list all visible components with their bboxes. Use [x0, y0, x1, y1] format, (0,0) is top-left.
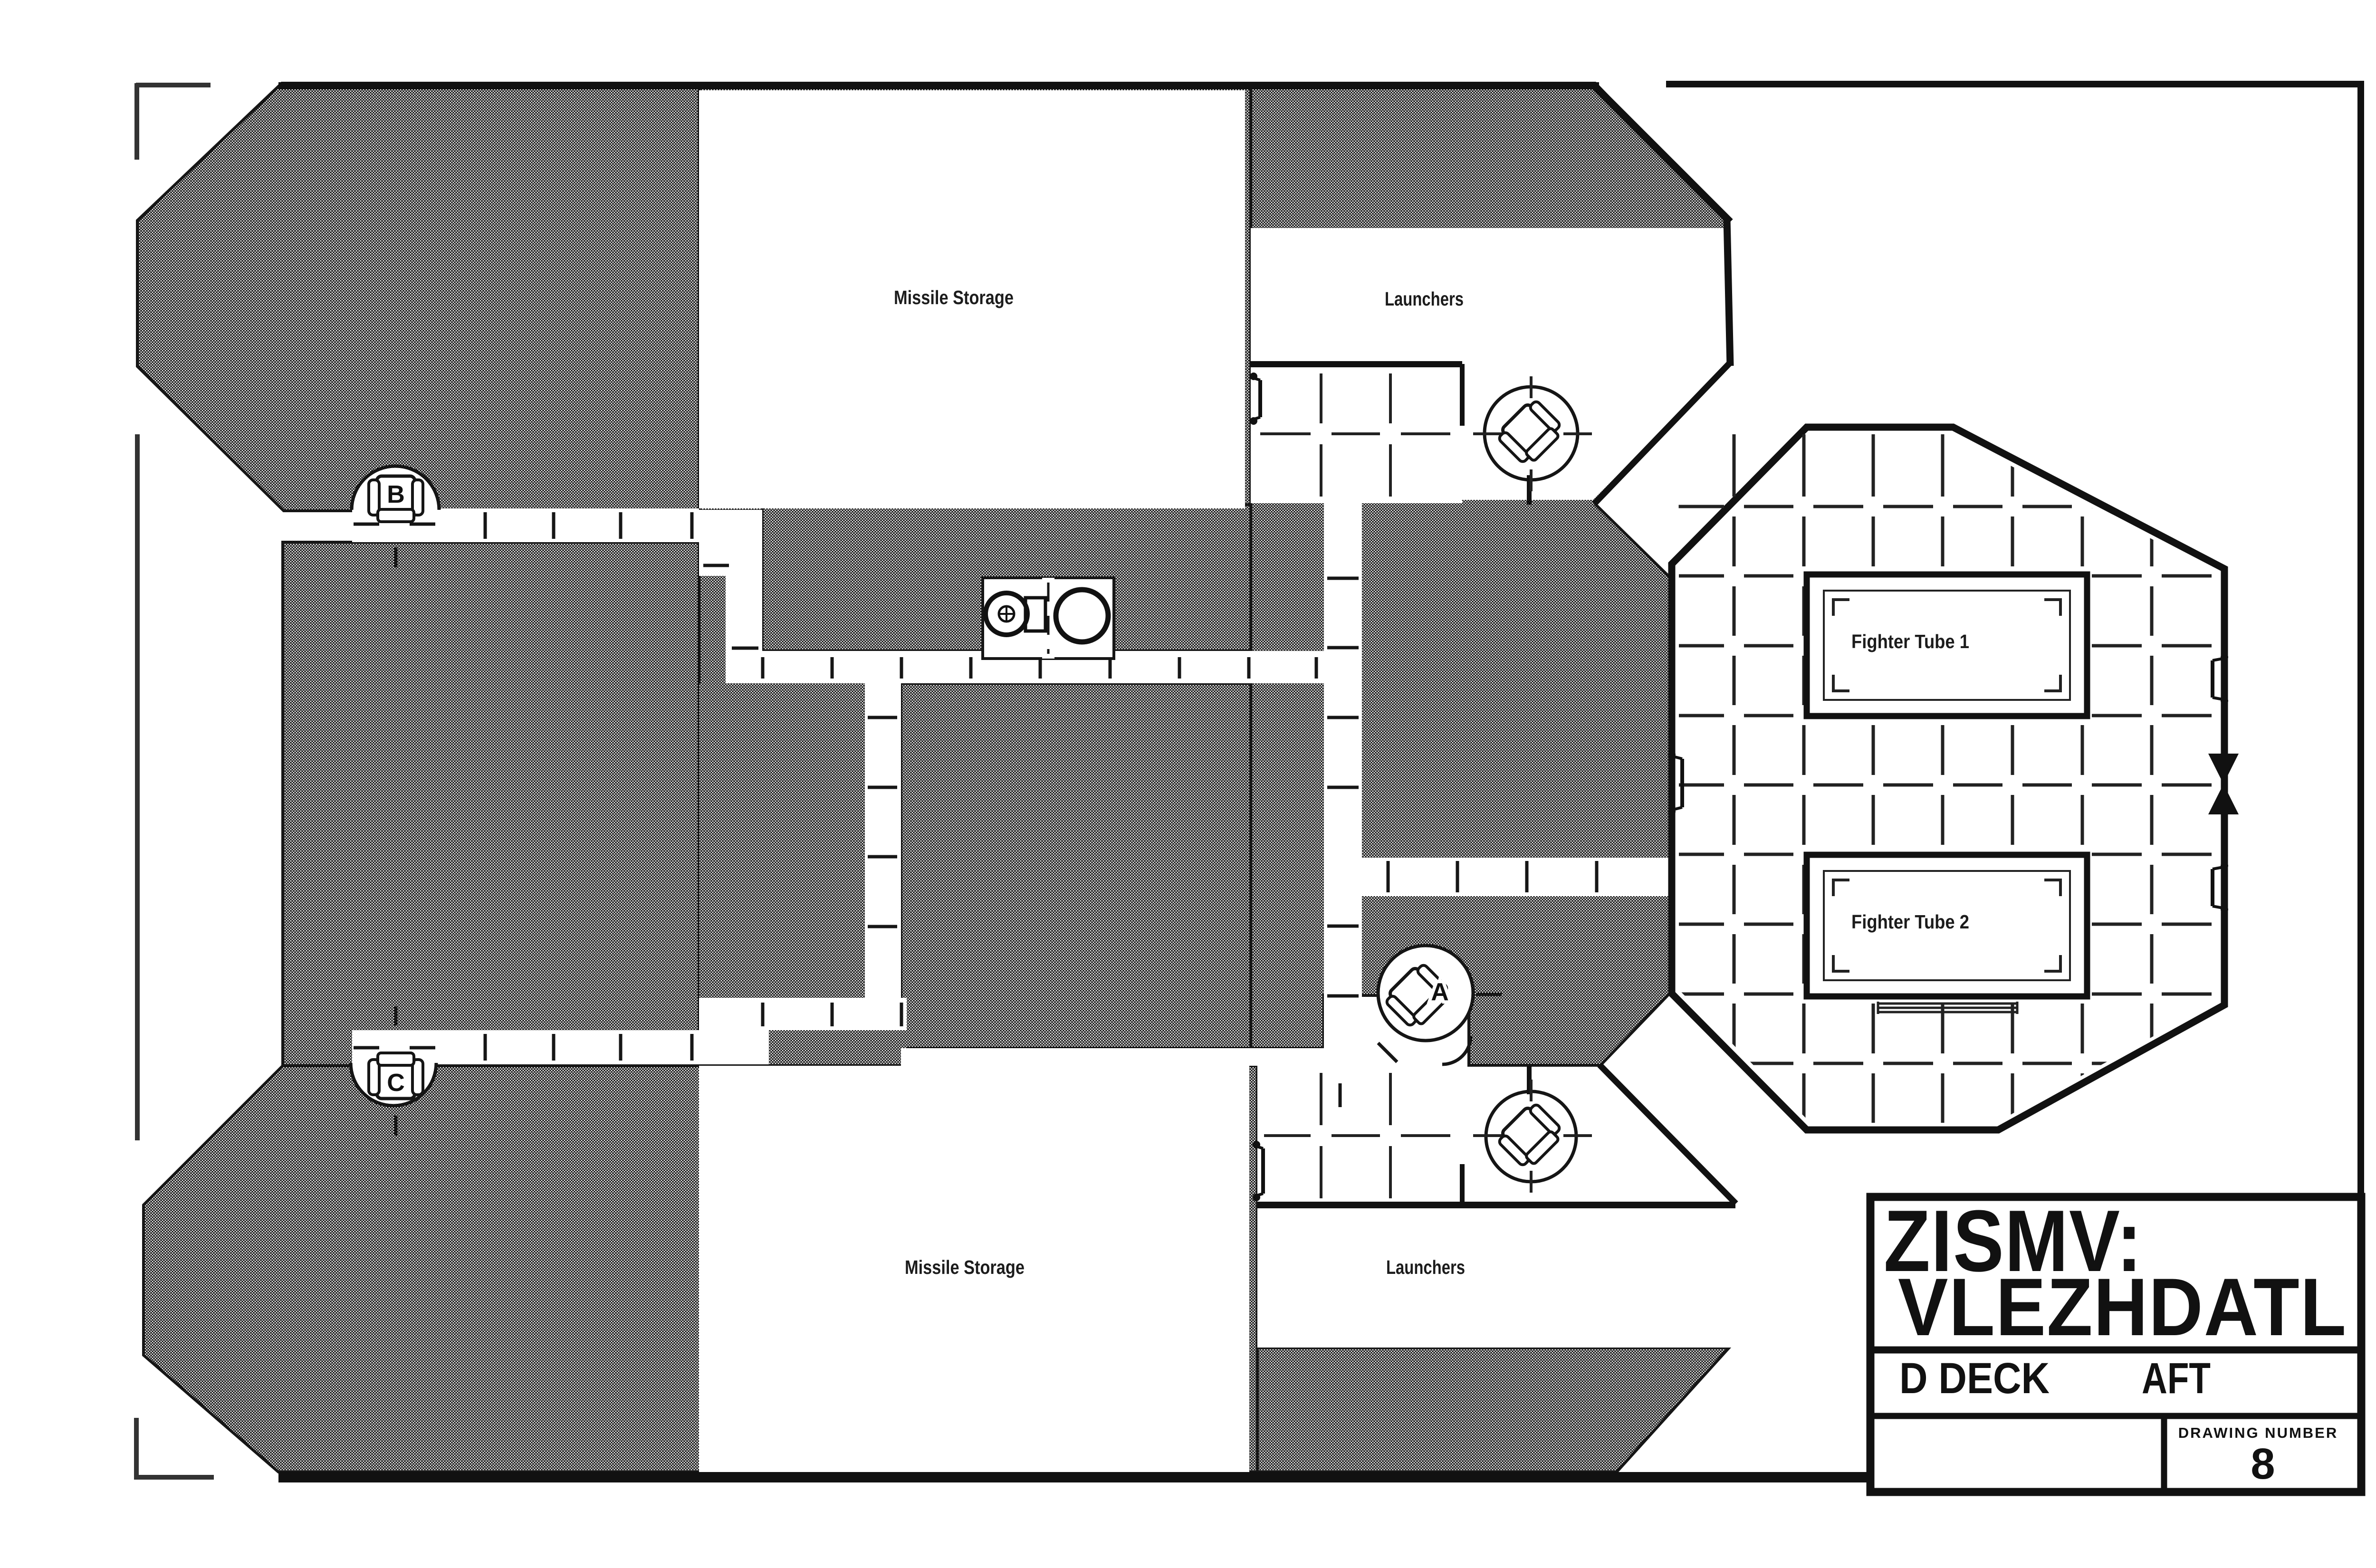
svg-text:Missile Storage: Missile Storage [905, 1256, 1025, 1278]
svg-text:8: 8 [2251, 1440, 2275, 1488]
svg-text:Fighter Tube 1: Fighter Tube 1 [1851, 631, 1969, 652]
svg-text:DRAWING NUMBER: DRAWING NUMBER [2178, 1425, 2338, 1441]
svg-text:B: B [387, 481, 405, 508]
svg-text:Fighter Tube 2: Fighter Tube 2 [1851, 911, 1969, 933]
svg-text:D DECK: D DECK [1899, 1354, 2050, 1403]
svg-text:C: C [387, 1069, 405, 1097]
svg-text:AFT: AFT [2142, 1354, 2211, 1403]
svg-text:A: A [1431, 978, 1449, 1006]
svg-text:Missile Storage: Missile Storage [894, 287, 1014, 308]
svg-text:VLEZHDATL: VLEZHDATL [1898, 1262, 2347, 1353]
svg-text:Launchers: Launchers [1386, 1256, 1465, 1278]
svg-text:Launchers: Launchers [1385, 288, 1464, 310]
